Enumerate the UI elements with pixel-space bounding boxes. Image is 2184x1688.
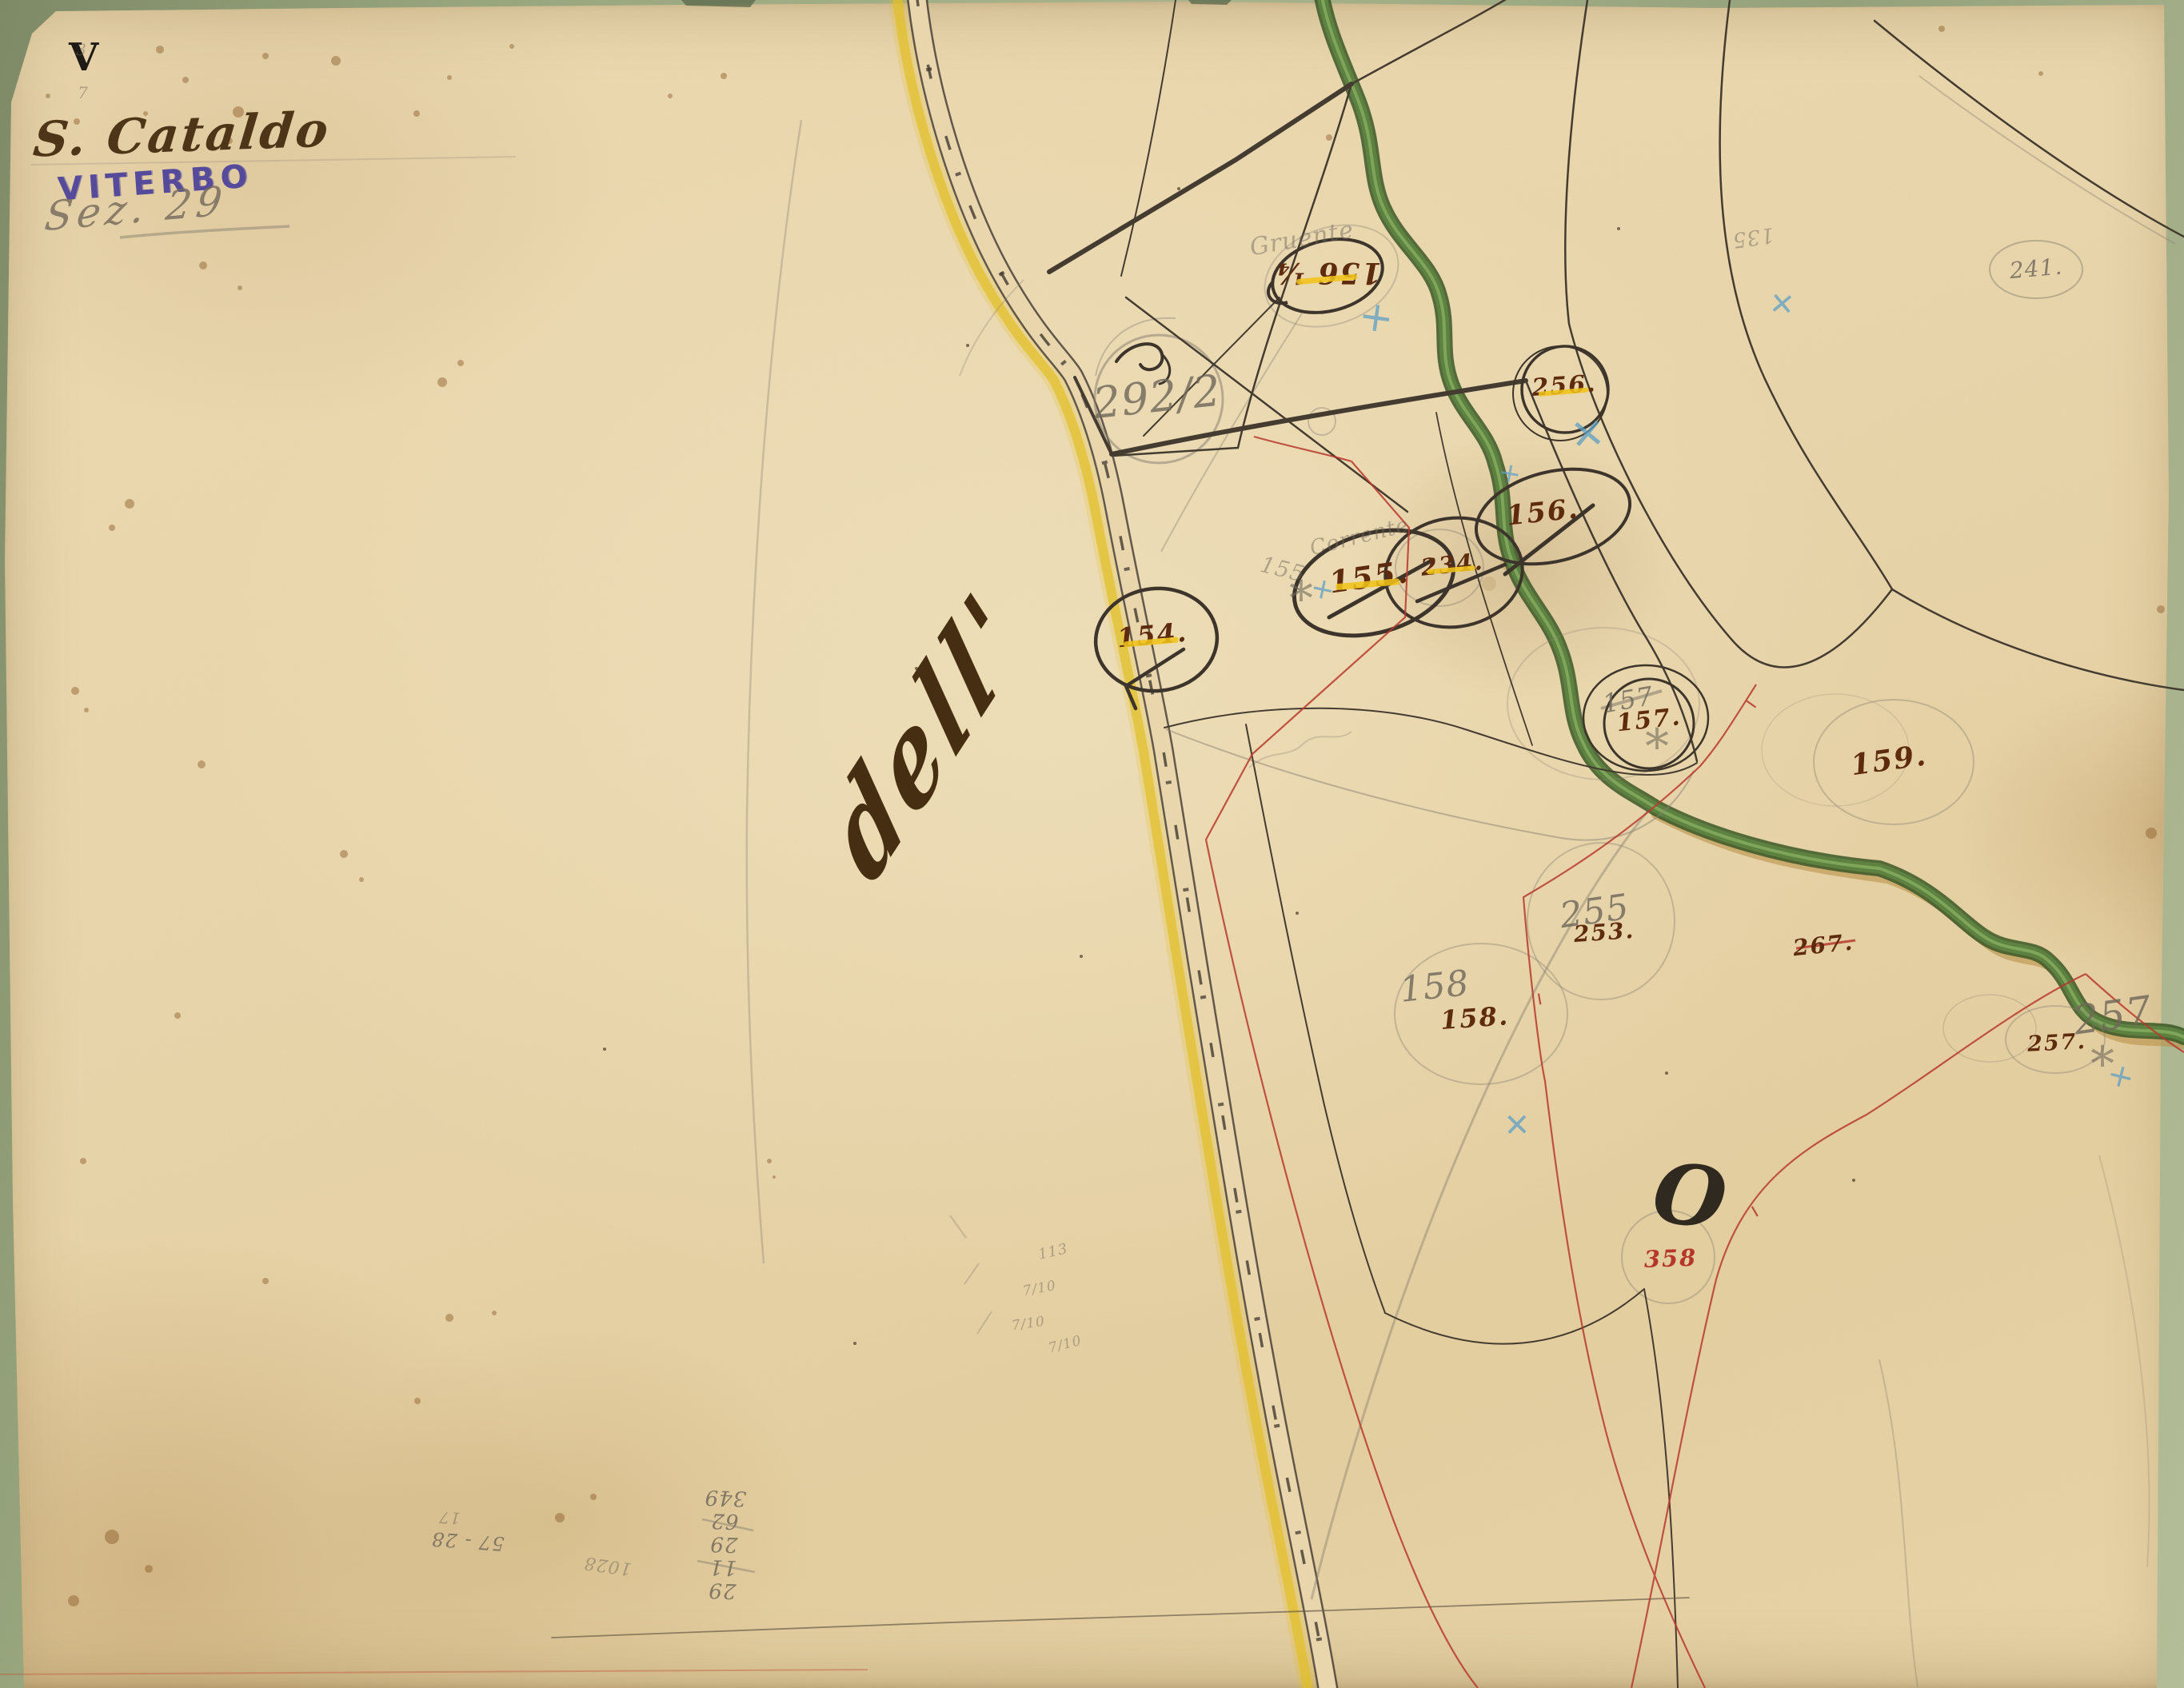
map-paper-sheet <box>0 0 2184 1688</box>
scanned-map-sheet: V S. Cataldo VITERBO Sez. 29 dell' 156 ¼… <box>0 0 2184 1688</box>
